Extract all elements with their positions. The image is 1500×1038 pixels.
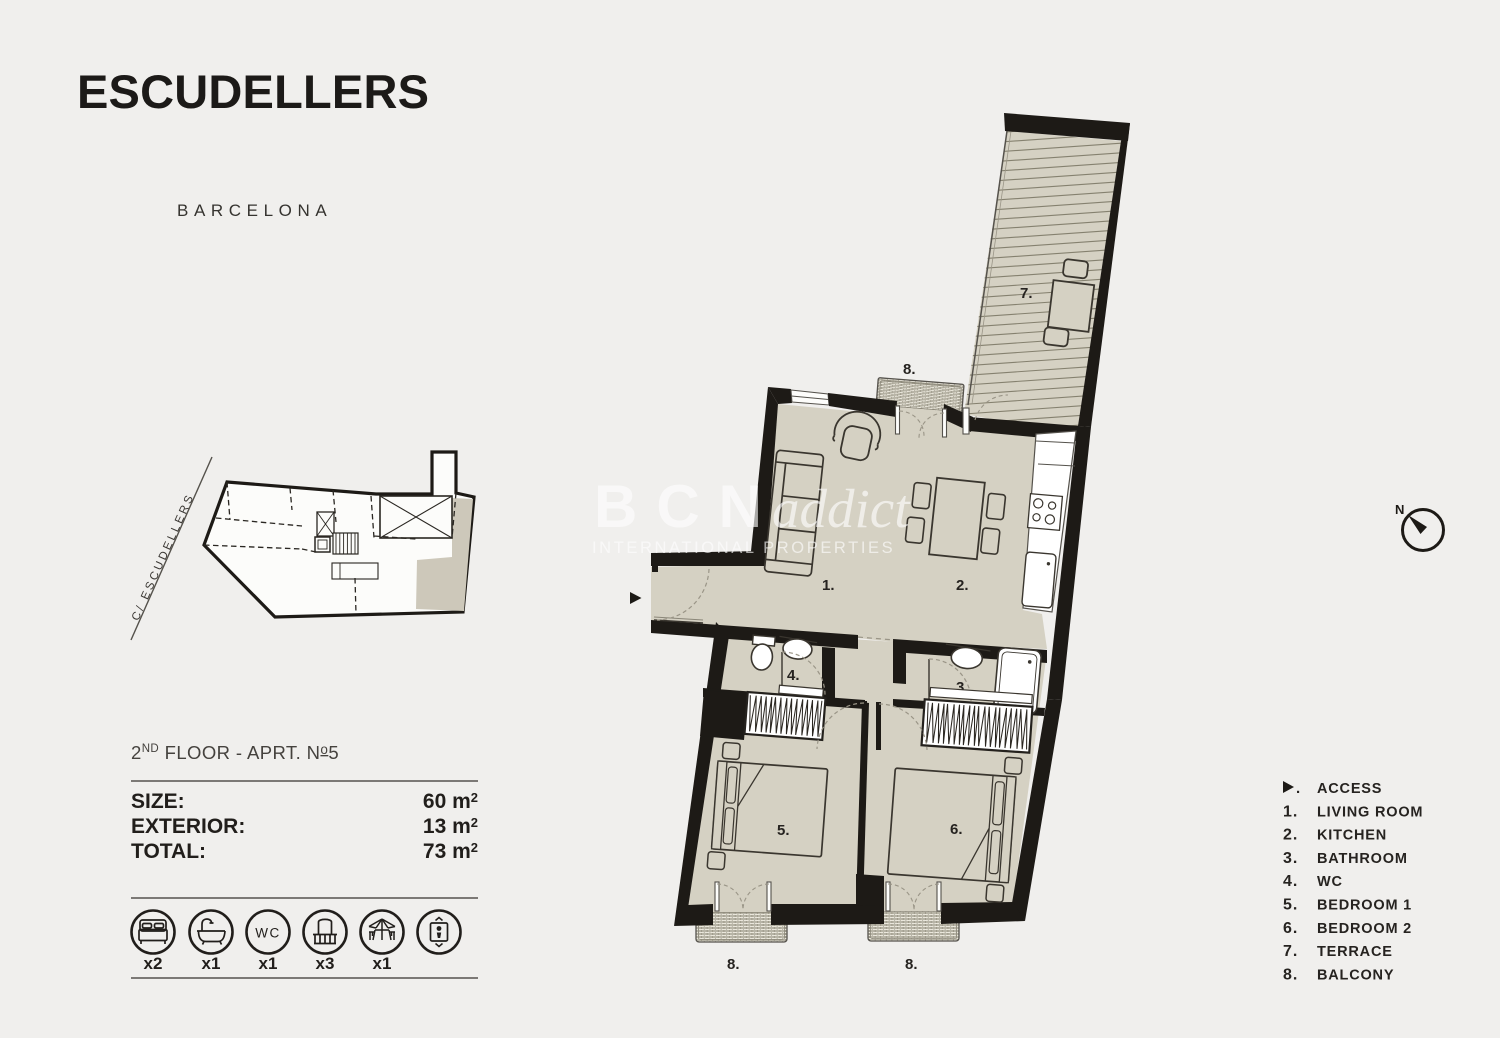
svg-text:7.: 7. (1283, 943, 1298, 960)
svg-text:2.: 2. (1283, 827, 1298, 844)
svg-text:13 m2: 13 m2 (423, 815, 478, 838)
svg-text:8.: 8. (727, 956, 740, 973)
svg-text:ESCUDELLERS: ESCUDELLERS (77, 65, 429, 118)
svg-text:4.: 4. (1283, 873, 1298, 890)
svg-text:2.: 2. (956, 577, 969, 594)
svg-text:BEDROOM 1: BEDROOM 1 (1317, 898, 1412, 914)
svg-text:6.: 6. (950, 821, 963, 838)
svg-text:BATHROOM: BATHROOM (1317, 851, 1408, 867)
svg-text:x2: x2 (144, 954, 163, 973)
svg-text:SIZE:: SIZE: (131, 790, 185, 813)
svg-text:KITCHEN: KITCHEN (1317, 828, 1387, 844)
svg-text:3.: 3. (1283, 850, 1298, 867)
svg-text:BCN: BCN (594, 473, 781, 540)
svg-text:x1: x1 (373, 954, 392, 973)
svg-text:BEDROOM 2: BEDROOM 2 (1317, 921, 1412, 937)
svg-text:LIVING ROOM: LIVING ROOM (1317, 804, 1423, 820)
svg-text:1.: 1. (1283, 803, 1298, 820)
svg-text:8.: 8. (1283, 966, 1298, 983)
svg-text:1.: 1. (822, 577, 835, 594)
svg-text:.: . (1296, 780, 1300, 797)
svg-text:TERRACE: TERRACE (1317, 944, 1393, 960)
svg-text:BARCELONA: BARCELONA (177, 201, 332, 220)
svg-text:5.: 5. (777, 822, 790, 839)
svg-text:WC: WC (255, 926, 281, 941)
svg-text:60 m2: 60 m2 (423, 790, 478, 813)
svg-text:5.: 5. (1283, 897, 1298, 914)
svg-text:EXTERIOR:: EXTERIOR: (131, 815, 245, 838)
svg-text:7.: 7. (1020, 285, 1033, 302)
svg-text:4.: 4. (787, 667, 800, 684)
svg-text:6.: 6. (1283, 920, 1298, 937)
svg-text:x3: x3 (316, 954, 335, 973)
svg-text:8.: 8. (905, 956, 918, 973)
svg-text:TOTAL:: TOTAL: (131, 840, 206, 863)
svg-text:x1: x1 (259, 954, 278, 973)
svg-text:73 m2: 73 m2 (423, 840, 478, 863)
svg-text:x1: x1 (202, 954, 221, 973)
svg-text:INTERNATIONAL PROPERTIES: INTERNATIONAL PROPERTIES (592, 539, 895, 557)
svg-text:WC: WC (1317, 874, 1343, 890)
svg-text:8.: 8. (903, 361, 916, 378)
svg-text:BALCONY: BALCONY (1317, 967, 1394, 983)
svg-text:2ND FLOOR - APRT. No5: 2ND FLOOR - APRT. No5 (131, 742, 339, 763)
svg-text:ACCESS: ACCESS (1317, 781, 1382, 797)
svg-text:N: N (1395, 502, 1404, 517)
svg-text:addict: addict (772, 478, 911, 539)
